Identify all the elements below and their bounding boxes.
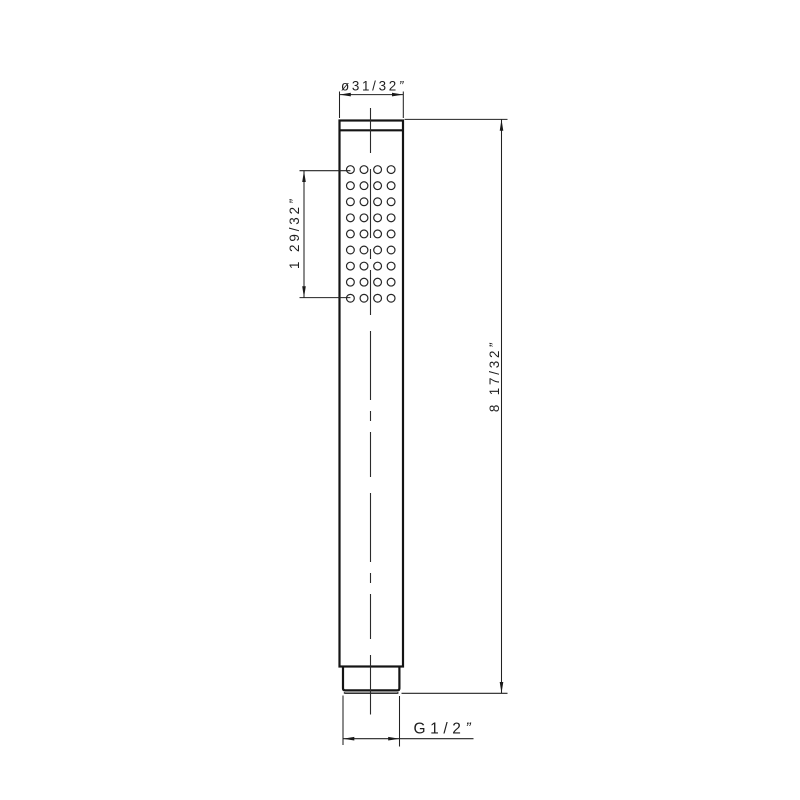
svg-text:8 17/32”: 8 17/32” <box>487 341 502 413</box>
svg-text:ø31/32”: ø31/32” <box>341 78 406 93</box>
svg-text:G1/2”: G1/2” <box>414 720 476 737</box>
svg-text:1 29/32”: 1 29/32” <box>287 197 302 269</box>
